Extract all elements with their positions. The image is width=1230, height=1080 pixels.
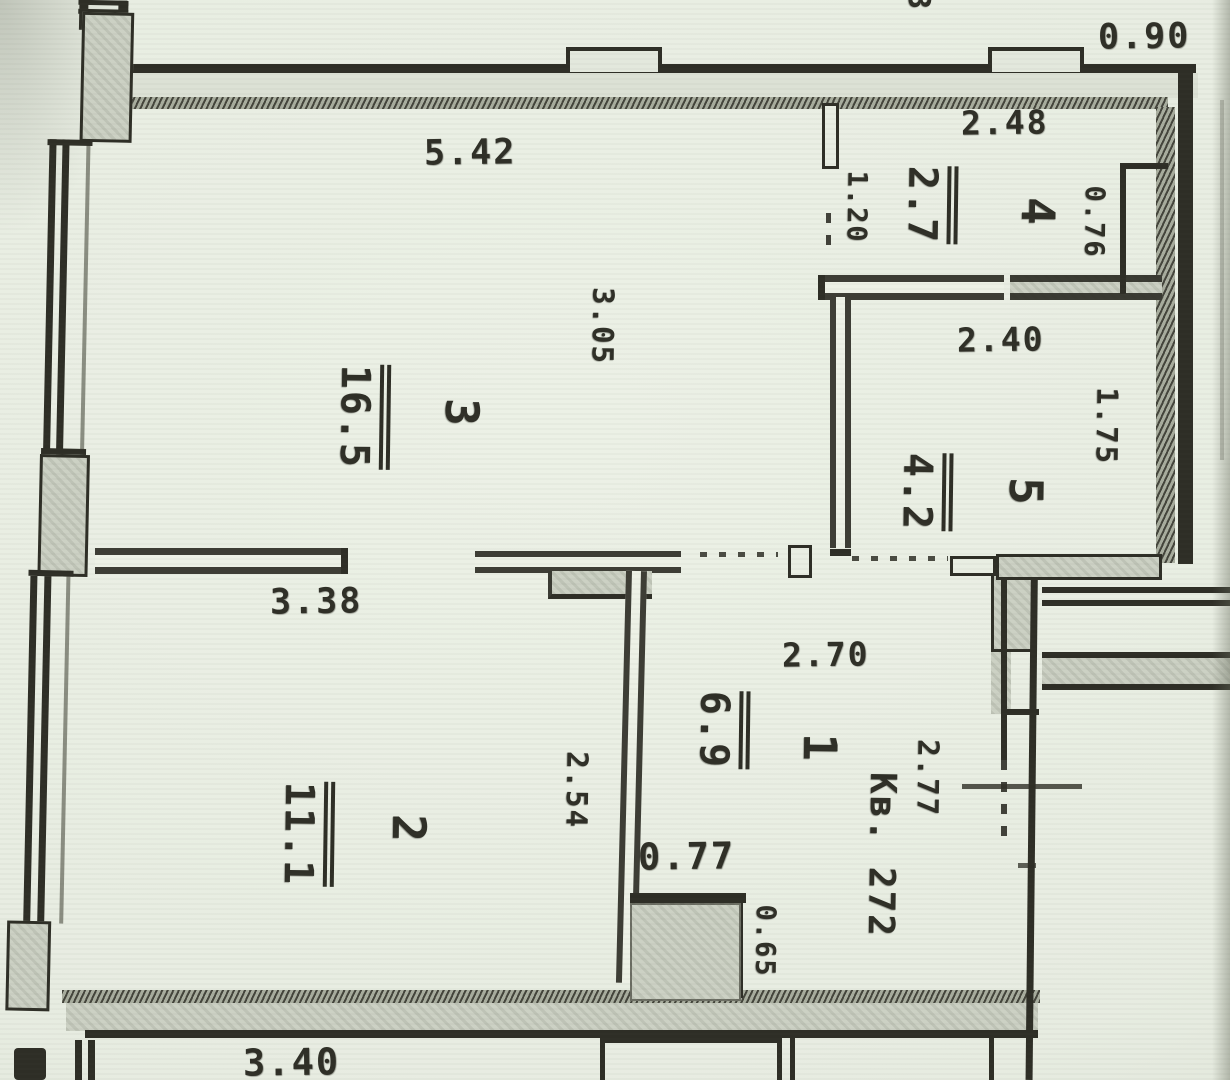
scan-shadow-right-edge xyxy=(1212,0,1230,1080)
scan-grain-overlay xyxy=(0,0,1230,1080)
floor-plan-scan: 0.90 5.42 2.48 2.40 2.70 0.77 3.38 3.40 … xyxy=(0,0,1230,1080)
